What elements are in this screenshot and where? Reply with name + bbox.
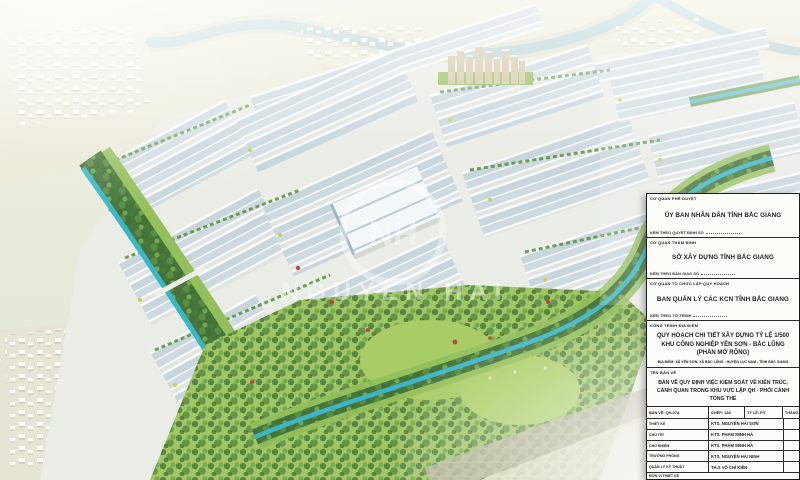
role-cell: CHỦ NHIỆM	[647, 441, 709, 451]
approval-section-2: CƠ QUAN THẨM ĐỊNH SỞ XÂY DỰNG TỈNH BẮC G…	[647, 238, 799, 279]
signature-cell	[784, 462, 799, 472]
approval-section-3: CƠ QUAN TỔ CHỨC LẬP QUY HOẠCH BAN QUẢN L…	[647, 279, 799, 322]
person-cell: KTS. PHẠM MINH HÀ	[709, 430, 784, 440]
role-cell: CHỦ TRÌ	[647, 430, 709, 440]
sheet-number: BẢN VẼ: QH-07A	[647, 407, 709, 418]
signature-cell	[784, 451, 799, 461]
approval-authority: ỦY BAN NHÂN DÂN TỈNH BẮC GIANG	[647, 201, 799, 230]
dotted-line	[701, 271, 735, 275]
sheet-month: THÁNG: 2023	[783, 407, 799, 418]
sheet-size: GHÉP: 1A0	[709, 407, 745, 418]
signature-table: BẢN VẼ: QH-07A GHÉP: 1A0 TỶ LỆ: P/T THÁN…	[647, 407, 799, 479]
drawing-title-section: TÊN BẢN VẼ BẢN VẼ QUY ĐỊNH VIỆC KIỂM SOÁ…	[647, 368, 799, 407]
role-cell: QUẢN LÝ KỸ THUẬT	[647, 462, 709, 472]
role-cell: THIẾT KẾ	[647, 419, 709, 429]
drawing-title-line2: CẢNH QUAN TRONG KHU VỰC LẬP QH - PHỐI CẢ…	[649, 387, 797, 403]
signature-cell	[784, 441, 799, 451]
dotted-line	[706, 230, 740, 234]
approval-label: CƠ QUAN TỔ CHỨC LẬP QUY HOẠCH	[647, 279, 799, 286]
approval-authority: BAN QUẢN LÝ CÁC KCN TỈNH BẮC GIANG	[647, 286, 799, 314]
approval-section-1: CƠ QUAN PHÊ DUYỆT ỦY BAN NHÂN DÂN TỈNH B…	[647, 194, 799, 238]
table-row: CHỦ NHIỆM KTS. PHẠM MINH HÀ	[647, 441, 799, 452]
signature-cell	[784, 430, 799, 440]
role-cell: TRƯỞNG PHÒNG	[647, 451, 709, 461]
approval-authority: SỞ XÂY DỰNG TỈNH BẮC GIANG	[647, 245, 799, 271]
masterplan-sheet: NH NGUYEN HAI CƠ QUAN PHÊ DUYỆT ỦY BAN N…	[0, 0, 800, 480]
project-title-line3: (PHẦN MỞ RỘNG)	[649, 349, 797, 358]
person-cell: KTS. PHẠM MINH HÀ	[709, 441, 784, 451]
approval-label: CƠ QUAN THẨM ĐỊNH	[647, 238, 799, 245]
person-cell: KTS. NGUYỄN HẢI NINH	[709, 451, 784, 461]
watermark-text: NGUYEN HAI	[282, 278, 509, 306]
person-cell: KTS. NGUYỄN HẢI SƠN	[709, 419, 784, 429]
signature-cell	[784, 419, 799, 429]
project-title-line2: KHU CÔNG NGHIỆP YÊN SƠN - BẮC LŨNG	[649, 341, 797, 350]
approval-note: KÈM THEO BÀN GIAO SỐ	[647, 271, 799, 278]
approval-note: KÈM THEO QUYẾT ĐỊNH SỐ	[647, 230, 799, 237]
watermark-monogram: NH	[368, 215, 417, 253]
project-label: CÔNG TRÌNH ĐỊA ĐIỂM	[647, 321, 799, 328]
title-block-panel: CƠ QUAN PHÊ DUYỆT ỦY BAN NHÂN DÂN TỈNH B…	[646, 193, 800, 480]
sheet-scale: TỶ LỆ: P/T	[745, 407, 783, 418]
person-cell: TH.S VÕ CHÍ KIÊN	[709, 462, 784, 472]
approval-note: KÈM THEO TỜ TRÌNH	[647, 313, 799, 320]
table-row: QUẢN LÝ KỸ THUẬT TH.S VÕ CHÍ KIÊN	[647, 462, 799, 473]
table-row: THIẾT KẾ KTS. NGUYỄN HẢI SƠN	[647, 419, 799, 430]
project-address: ĐỊA ĐIỂM: XÃ YÊN SƠN, XÃ BẮC LŨNG - HUYỆ…	[649, 360, 797, 364]
drawing-label: TÊN BẢN VẼ	[647, 368, 799, 375]
table-row: CHỦ TRÌ KTS. PHẠM MINH HÀ	[647, 430, 799, 441]
table-row: TRƯỞNG PHÒNG KTS. NGUYỄN HẢI NINH	[647, 451, 799, 462]
project-title-line1: QUY HOẠCH CHI TIẾT XÂY DỰNG TỶ LỆ 1/500	[649, 332, 797, 341]
design-firm-row: ĐƠN VỊ THIẾT KẾ	[647, 473, 799, 479]
approval-label: CƠ QUAN PHÊ DUYỆT	[647, 194, 799, 201]
dotted-line	[693, 313, 727, 317]
table-header-row: BẢN VẼ: QH-07A GHÉP: 1A0 TỶ LỆ: P/T THÁN…	[647, 407, 799, 419]
drawing-title-line1: BẢN VẼ QUY ĐỊNH VIỆC KIỂM SOÁT VỀ KIẾN T…	[649, 379, 797, 387]
project-section: CÔNG TRÌNH ĐỊA ĐIỂM QUY HOẠCH CHI TIẾT X…	[647, 321, 799, 368]
